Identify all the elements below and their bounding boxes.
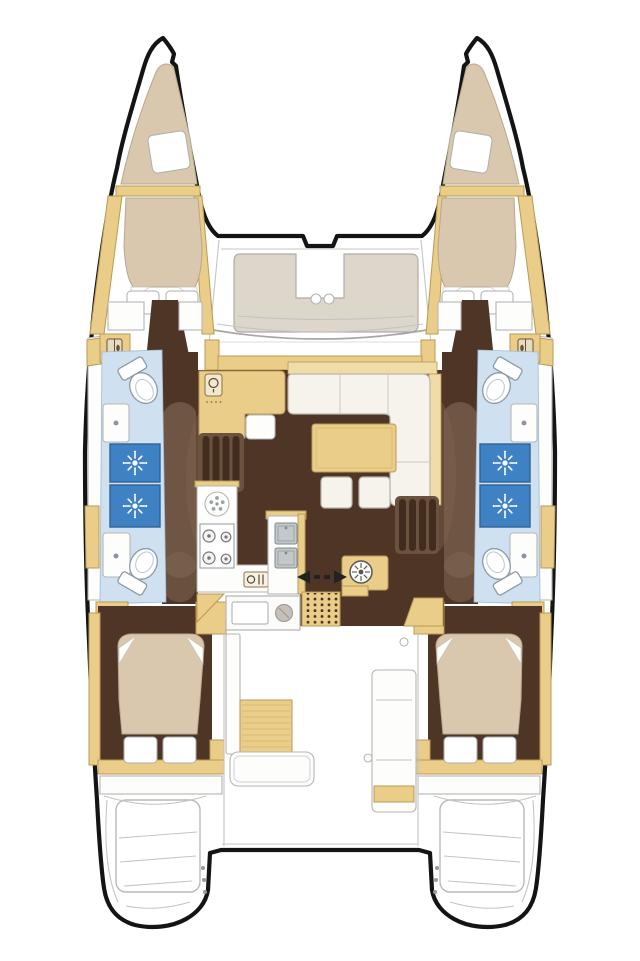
stove [200, 524, 234, 568]
outdoor-galley-module [226, 596, 300, 630]
starboard-companionway-steps [395, 496, 439, 554]
step [399, 499, 406, 551]
cockpit-side-bench [226, 634, 240, 754]
cupholder [324, 294, 334, 304]
cupholder [311, 294, 321, 304]
round-sink [205, 492, 229, 516]
sofa-back-shelf [429, 374, 441, 505]
catamaran-floorplan: Catamaran interior layout floor plan Top… [0, 0, 640, 961]
aft-locker [374, 786, 414, 802]
cockpit-sink [232, 602, 268, 624]
ottoman [359, 477, 390, 508]
saloon [186, 362, 456, 626]
step [419, 499, 426, 551]
deck-ring [364, 754, 372, 762]
saloon-table [312, 424, 396, 472]
counter-trim [298, 514, 305, 594]
deck-ring [400, 638, 408, 646]
step [429, 499, 436, 551]
ottoman [321, 477, 352, 508]
cockpit-aft-bench [230, 752, 314, 786]
nav-instrument-icon [205, 374, 222, 396]
round-appliance [342, 556, 388, 596]
step [409, 499, 416, 551]
sofa-back-shelf [288, 362, 437, 374]
saloon-front-pillar [205, 340, 219, 370]
windshield-sill [218, 342, 422, 356]
nav-station [199, 371, 285, 439]
oven-icon [244, 572, 268, 587]
nav-seat [246, 415, 275, 439]
threshold-mat [302, 592, 340, 626]
round-appliance-icon [350, 561, 372, 583]
floorplan-page: Catamaran interior layout floor plan Top… [0, 0, 640, 961]
